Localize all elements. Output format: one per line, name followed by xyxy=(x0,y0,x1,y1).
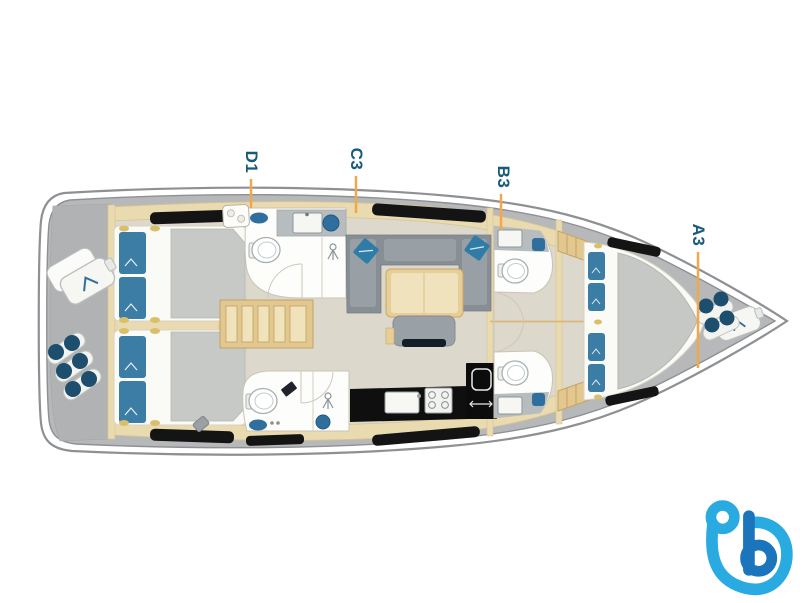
washbasin-round xyxy=(323,215,339,231)
boataround-b-logo xyxy=(690,489,803,601)
gold-trim xyxy=(119,420,129,426)
bench-side-trim xyxy=(386,328,394,344)
pillow xyxy=(119,381,146,423)
pillow xyxy=(588,364,605,392)
gold-trim xyxy=(119,317,129,323)
gold-trim xyxy=(150,317,160,323)
fender-end xyxy=(81,371,97,387)
pillow xyxy=(588,252,605,280)
gold-trim xyxy=(119,226,129,232)
fender-end xyxy=(705,318,720,333)
washbasin xyxy=(498,397,522,414)
faucet xyxy=(276,421,280,425)
gold-trim xyxy=(119,328,129,334)
fender-end xyxy=(65,381,81,397)
fender-end xyxy=(699,299,714,314)
gold-trim xyxy=(150,226,160,232)
gold-trim xyxy=(150,328,160,334)
fender-end xyxy=(714,292,729,307)
gold-trim xyxy=(150,420,160,426)
pillow xyxy=(588,333,605,361)
tv-bench-base xyxy=(402,339,446,347)
washbasin-blue xyxy=(532,238,545,251)
faucet xyxy=(305,213,309,217)
sofa-seat xyxy=(384,239,456,261)
pillow xyxy=(119,277,146,319)
deck-hatch xyxy=(246,434,304,446)
fridge xyxy=(466,363,497,419)
fender-end xyxy=(48,344,64,360)
cabin-label-c3: C3 xyxy=(336,139,376,179)
faucet xyxy=(270,421,274,425)
gold-trim xyxy=(594,320,602,325)
stair-tread xyxy=(258,306,269,342)
pillow xyxy=(119,232,146,274)
shower-drain-blue xyxy=(316,415,330,429)
yacht-floorplan-image: D1 C3 B3 A3 xyxy=(0,0,805,603)
stair-tread xyxy=(274,306,285,342)
gold-trim xyxy=(594,395,602,400)
fender-end xyxy=(56,363,72,379)
stair-tread xyxy=(226,306,237,342)
fender-end xyxy=(64,335,80,351)
cabin-label-d1: D1 xyxy=(231,142,271,182)
yacht-plan-drawing xyxy=(0,0,805,603)
pillow xyxy=(119,336,146,378)
head-port-aft xyxy=(245,208,346,298)
cabin-label-a3: A3 xyxy=(678,215,718,255)
companionway-stairs xyxy=(220,300,313,348)
washbasin-blue xyxy=(532,393,545,406)
skylight-companionway xyxy=(222,204,249,227)
washbasin-blue xyxy=(249,420,267,431)
washbasin xyxy=(498,230,522,247)
galley-sink xyxy=(385,392,419,413)
faucet xyxy=(417,394,421,398)
gold-trim xyxy=(594,244,602,249)
stern-deck-panel xyxy=(50,204,110,441)
washbasin-blue xyxy=(250,213,268,224)
fender-end xyxy=(72,353,88,369)
head-starboard-aft xyxy=(243,371,349,431)
stair-tread xyxy=(242,306,253,342)
fender-end xyxy=(720,311,735,326)
stove xyxy=(425,388,452,413)
cabin-label-b3: B3 xyxy=(483,157,523,197)
pillow xyxy=(588,283,605,311)
stair-tread xyxy=(290,306,306,342)
